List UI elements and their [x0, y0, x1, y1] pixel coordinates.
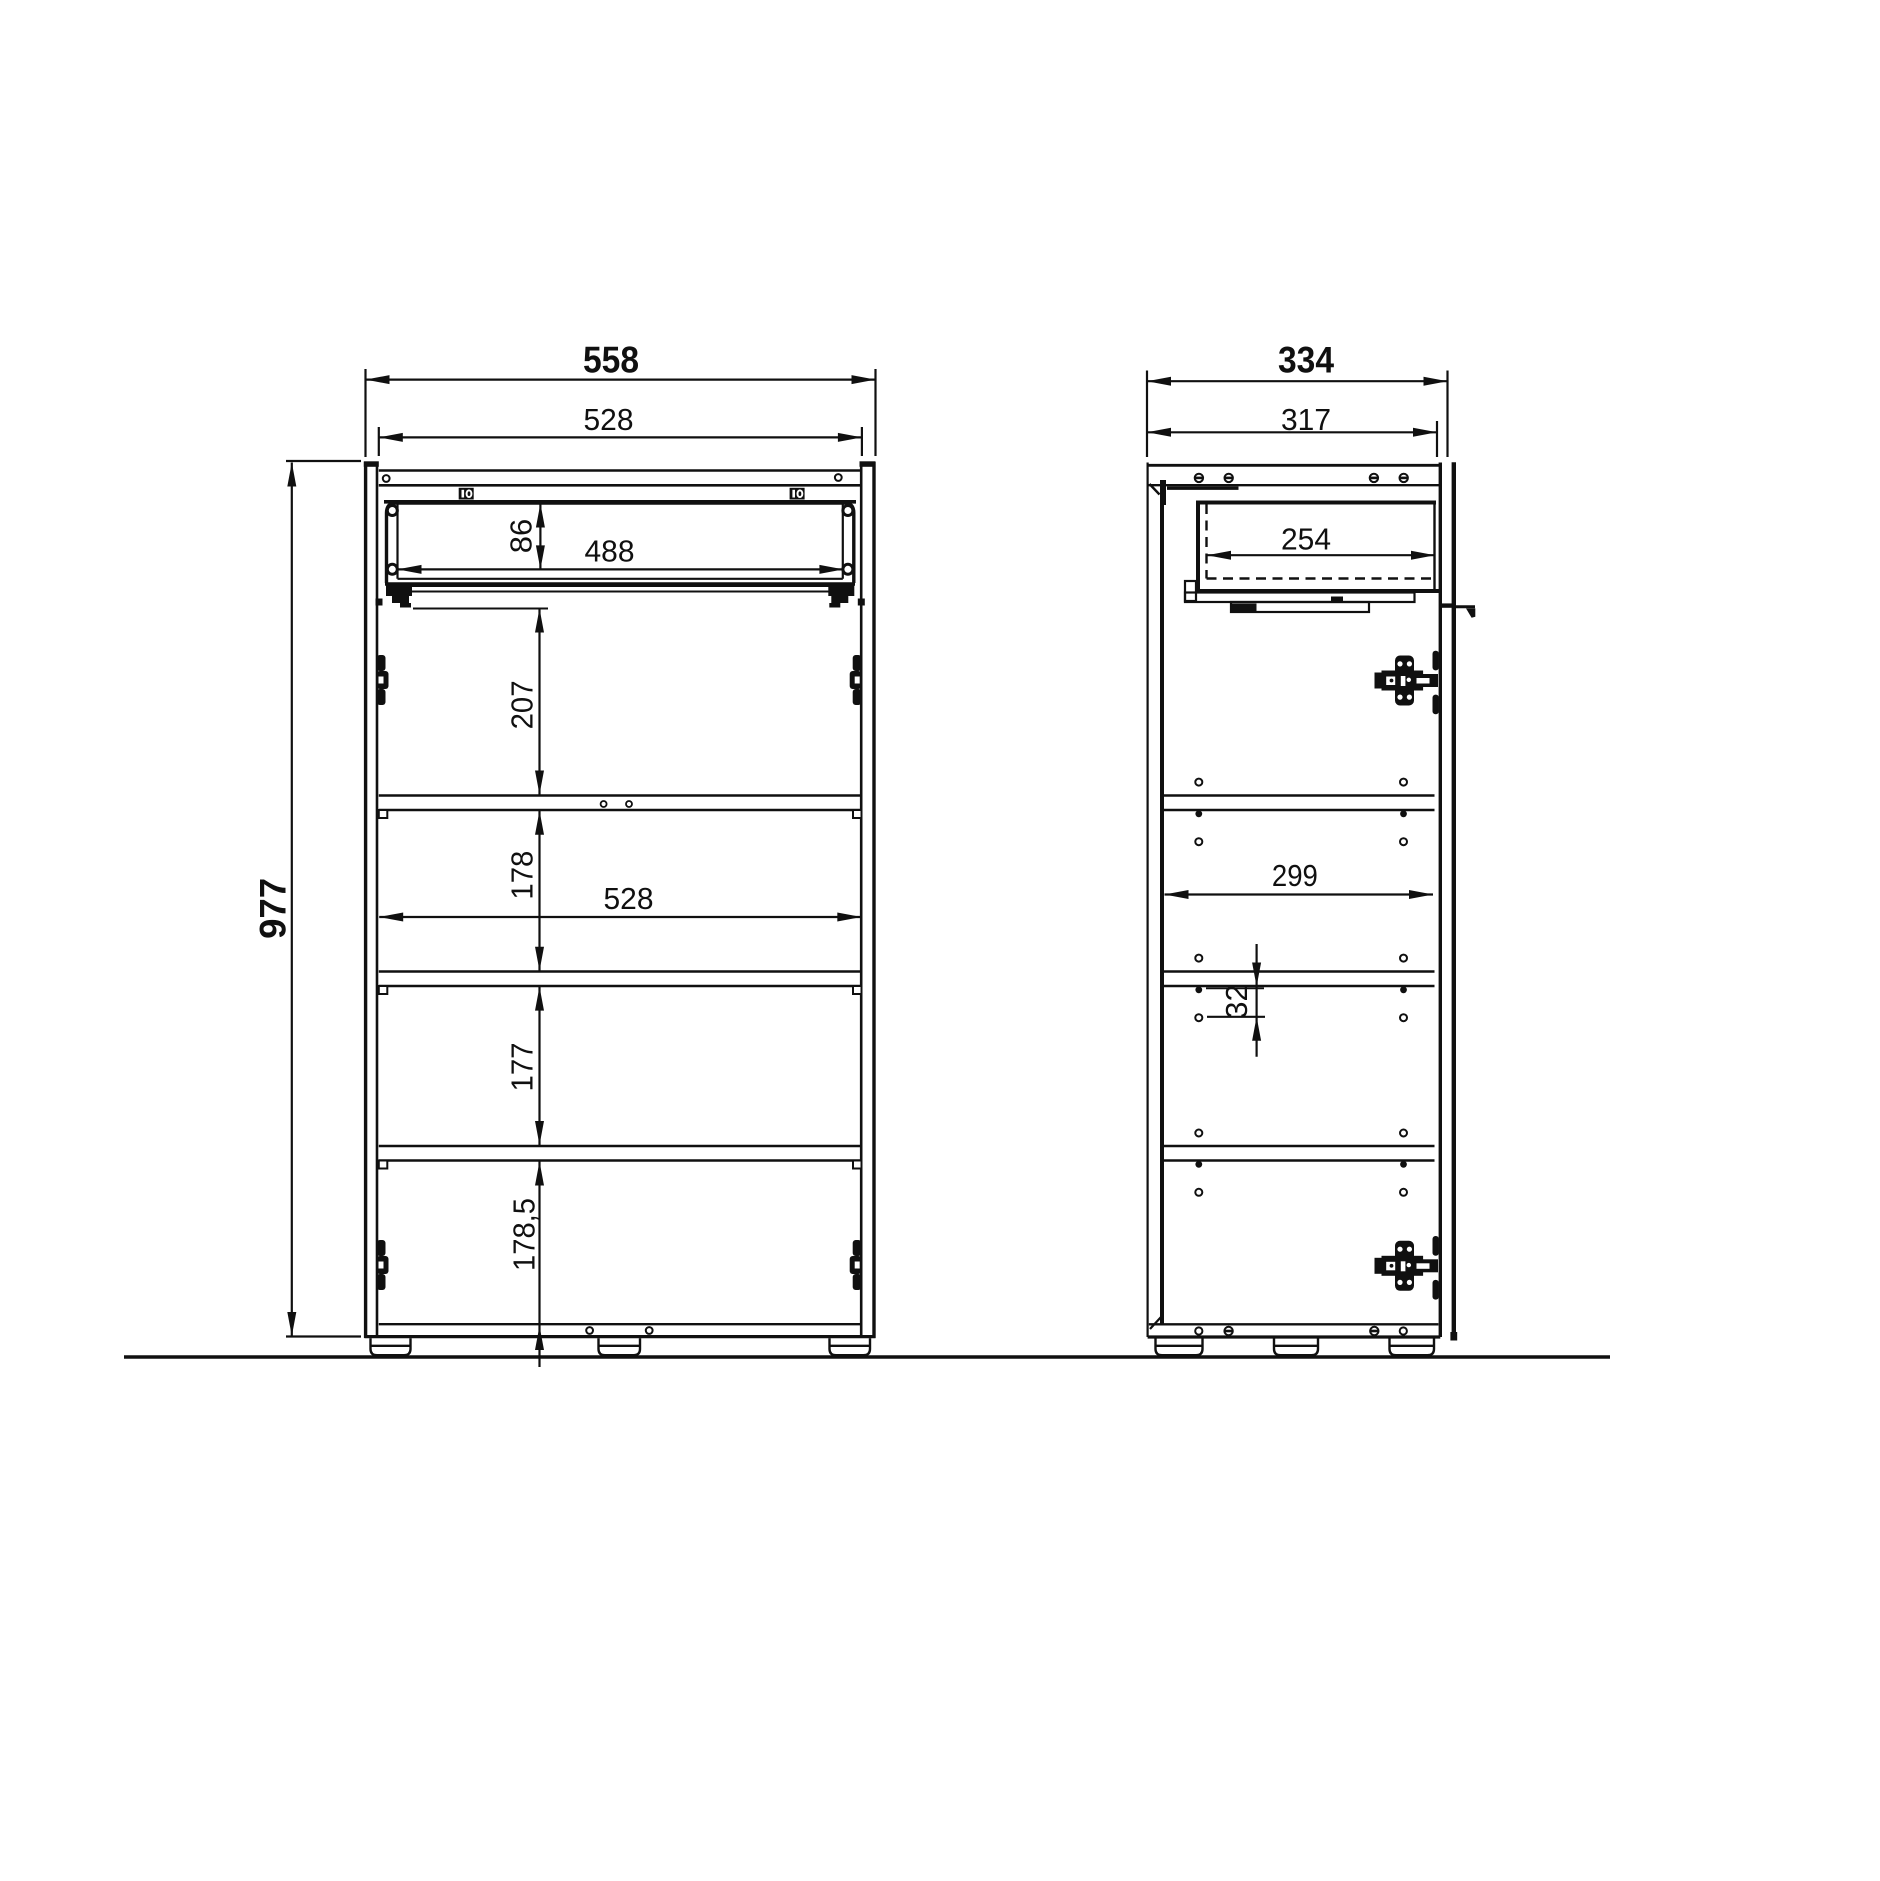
- svg-text:528: 528: [604, 881, 654, 916]
- svg-text:178,5: 178,5: [507, 1198, 542, 1271]
- svg-text:317: 317: [1281, 402, 1331, 437]
- svg-text:977: 977: [252, 878, 293, 939]
- svg-text:178: 178: [504, 851, 539, 900]
- svg-text:299: 299: [1272, 858, 1318, 893]
- svg-text:558: 558: [583, 340, 639, 381]
- svg-text:32: 32: [1219, 984, 1254, 1018]
- svg-text:334: 334: [1278, 340, 1334, 381]
- svg-text:488: 488: [585, 534, 635, 569]
- svg-text:254: 254: [1281, 522, 1331, 557]
- svg-text:86: 86: [504, 519, 539, 553]
- svg-text:528: 528: [584, 402, 634, 437]
- svg-text:177: 177: [504, 1043, 539, 1092]
- svg-text:207: 207: [504, 680, 539, 729]
